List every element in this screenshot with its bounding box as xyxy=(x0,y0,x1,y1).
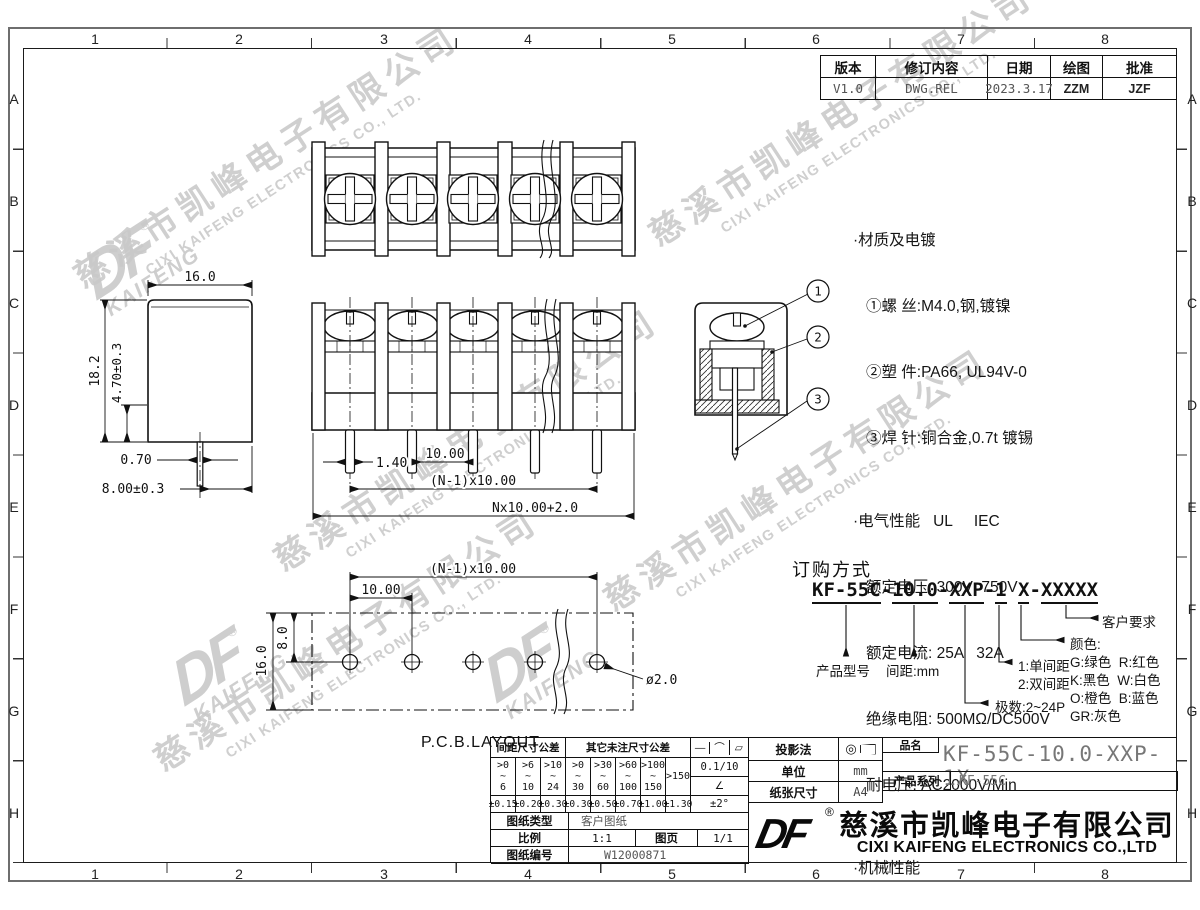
code-segment: 10.0 xyxy=(892,579,938,604)
ordering-color-option: GR:灰色 xyxy=(1070,705,1121,725)
dim-pin-offset: 8.00±0.3 xyxy=(102,482,165,497)
grid-row-label: A xyxy=(1182,91,1200,107)
scale-value: 1:1 xyxy=(569,830,636,847)
grid-col-label: 5 xyxy=(662,31,682,47)
df-logo: DF xyxy=(753,813,810,855)
revision-approved-by: JZF xyxy=(1103,78,1176,99)
tolerance-range: >100 ~ 150 xyxy=(641,758,666,796)
flatness-tolerance: 0.1/10 xyxy=(691,758,749,777)
grid-row-label: E xyxy=(1182,499,1200,515)
side-view: 16.0 18.2 4.70±0.3 0.70 8.00±0.3 xyxy=(85,268,300,503)
pitch-tolerance-header: 间距尺寸公差 xyxy=(491,738,566,758)
revision-content: DWG.REL xyxy=(876,78,988,99)
code-separator: - xyxy=(938,579,949,601)
code-separator: - xyxy=(881,579,892,601)
front-view: 1.40 10.00 (N-1)x10.00 Nx10.00+2.0 xyxy=(295,293,670,538)
grid-row-label: C xyxy=(4,295,24,311)
cone-icon xyxy=(860,744,876,755)
ordering-label-custom: 客户要求 xyxy=(1102,611,1156,631)
dimension-lines xyxy=(266,572,643,710)
dim-hole-diameter: ø2.0 xyxy=(646,673,677,688)
angle-icon: ∠ xyxy=(691,777,749,796)
sheet-label: 图页 xyxy=(636,830,698,847)
company-name-en: CIXI KAIFENG ELECTRONICS CO.,LTD xyxy=(837,839,1177,857)
tolerance-range: >6 ~ 10 xyxy=(516,758,541,796)
code-segment: XXXXX xyxy=(1041,579,1098,604)
callout-2: 2 xyxy=(814,330,822,345)
revision-value-row: V1.0 DWG.REL 2023.3.17 ZZM JZF xyxy=(821,78,1176,99)
grid-col-label: 2 xyxy=(229,31,249,47)
grid-row-label: C xyxy=(1182,295,1200,311)
dim-pitch: 10.00 xyxy=(425,447,464,462)
grid-col-label: 6 xyxy=(806,31,826,47)
title-block: 间距尺寸公差 其它未注尺寸公差 >0 ~ 6 >6 ~ 10 >10 ~ 24 … xyxy=(490,737,1177,863)
callout-1: 1 xyxy=(814,284,822,299)
material-line: ③焊 针:铜合金,0.7t 镀锡 xyxy=(853,428,1175,450)
grid-row-label: B xyxy=(4,193,24,209)
tolerance-range: >150 xyxy=(666,758,691,796)
dim-pin-width: 1.40 xyxy=(376,456,407,471)
callout-3: 3 xyxy=(814,392,822,407)
revision-header-row: 版本 修订内容 日期 绘图 批准 xyxy=(821,56,1176,78)
grid-row-label: F xyxy=(4,601,24,617)
revision-drawn-by: ZZM xyxy=(1051,78,1103,99)
company-block: DF ® 慈溪市凯峰电子有限公司 CIXI KAIFENG ELECTRONIC… xyxy=(749,803,1178,864)
grid-col-label: 8 xyxy=(1095,31,1115,47)
grid-ticks-left xyxy=(13,48,23,863)
geometry-symbols: — ⌒ ▱ xyxy=(691,738,749,758)
code-separator xyxy=(1007,579,1018,601)
material-line: ①螺 丝:M4.0,钢,镀镍 xyxy=(853,296,1175,318)
unit-label: 单位 xyxy=(749,761,839,782)
doc-number-label: 图纸编号 xyxy=(491,847,569,864)
dim-width: 16.0 xyxy=(184,270,215,285)
parallelogram-icon: ▱ xyxy=(730,742,748,754)
code-separator: - xyxy=(984,579,995,601)
tolerance-value: ±0.20 xyxy=(516,796,541,813)
screw-heads-front xyxy=(324,311,623,352)
grid-ticks-right xyxy=(1177,48,1187,863)
other-tolerance-header: 其它未注尺寸公差 xyxy=(566,738,691,758)
scale-label: 比例 xyxy=(491,830,569,847)
grid-col-label: 1 xyxy=(85,866,105,882)
ordering-label-double-pitch: 2:双间距 xyxy=(1018,673,1070,693)
dim-span: (N-1)x10.00 xyxy=(430,474,516,489)
paper-size-value: A4 xyxy=(839,782,883,803)
sheet-value: 1/1 xyxy=(698,830,749,847)
doc-type-label: 图纸类型 xyxy=(491,813,569,830)
dim-height: 18.2 xyxy=(88,355,103,386)
code-segment: XXP xyxy=(949,579,983,604)
grid-col-label: 2 xyxy=(229,866,249,882)
dim-pitch: 10.00 xyxy=(361,583,400,598)
ordering-color-option: G:绿色 R:红色 xyxy=(1070,651,1159,671)
revision-version: V1.0 xyxy=(821,78,876,99)
break-lines xyxy=(553,609,569,714)
top-view xyxy=(300,138,665,260)
ordering-label-color-title: 颜色: xyxy=(1070,633,1101,653)
revision-header: 批准 xyxy=(1103,56,1176,77)
grid-col-label: 7 xyxy=(951,31,971,47)
engineering-drawing-sheet: 慈溪市凯峰电子有限公司 CIXI KAIFENG ELECTRONICS CO.… xyxy=(0,0,1200,910)
dim-pin-thickness: 0.70 xyxy=(120,453,151,468)
dim-depth: 16.0 xyxy=(255,645,270,676)
screw-heads-top xyxy=(325,174,623,225)
grid-col-label: 4 xyxy=(518,31,538,47)
electrical-title: ·电气性能 UL IEC xyxy=(853,511,1175,533)
revision-header: 绘图 xyxy=(1051,56,1103,77)
ordering-label-model: 产品型号 xyxy=(816,660,870,680)
dim-pin-length: 4.70±0.3 xyxy=(109,343,124,403)
mounting-holes xyxy=(339,651,608,673)
revision-header: 日期 xyxy=(988,56,1051,77)
revision-header: 版本 xyxy=(821,56,876,77)
code-separator: - xyxy=(1029,579,1040,601)
dim-total: Nx10.00+2.0 xyxy=(492,501,578,516)
registered-mark: ® xyxy=(825,805,834,819)
grid-row-label: H xyxy=(4,805,24,821)
tolerance-range: >10 ~ 24 xyxy=(541,758,566,796)
grid-row-label: A xyxy=(4,91,24,107)
tolerance-value: ±0.15 xyxy=(491,796,516,813)
doc-number-value: W12000871 xyxy=(569,847,749,864)
ordering-label-pitch: 间距:mm xyxy=(886,660,939,680)
tolerance-range: >0 ~ 6 xyxy=(491,758,516,796)
straightness-icon: — xyxy=(691,742,710,754)
tolerance-value: ±0.50 xyxy=(591,796,616,813)
ordering-label-single-pitch: 1:单间距 xyxy=(1018,655,1070,675)
company-name-cn: 慈溪市凯峰电子有限公司 xyxy=(837,803,1177,844)
doc-type-value: 客户图纸 xyxy=(569,813,749,830)
tolerance-value: ±1.00 xyxy=(641,796,666,813)
tolerance-range: >60 ~ 100 xyxy=(616,758,641,796)
code-segment: KF-55C xyxy=(812,579,881,604)
grid-row-label: B xyxy=(1182,193,1200,209)
dim-span: (N-1)x10.00 xyxy=(430,562,516,577)
projection-symbol-cell: ◎ xyxy=(839,738,883,761)
unit-value: mm xyxy=(839,761,883,782)
revision-header: 修订内容 xyxy=(876,56,988,77)
grid-col-label: 1 xyxy=(85,31,105,47)
series-label: 产品系列 xyxy=(883,771,951,791)
grid-col-label: 3 xyxy=(374,31,394,47)
grid-col-label: 3 xyxy=(374,866,394,882)
grid-ticks-top xyxy=(23,38,1177,48)
code-segment: 1 xyxy=(995,579,1006,604)
grid-col-label: 6 xyxy=(806,866,826,882)
grid-row-label: E xyxy=(4,499,24,515)
first-angle-icon: ◎ xyxy=(845,741,856,757)
material-title: ·材质及电镀 xyxy=(853,230,1175,252)
tolerance-value: ±1.30 xyxy=(666,796,691,813)
grid-row-label: D xyxy=(1182,397,1200,413)
section-view: 1 2 3 xyxy=(665,268,870,473)
revision-table: 版本 修订内容 日期 绘图 批准 V1.0 DWG.REL 2023.3.17 … xyxy=(820,55,1177,100)
series-value: KF-55C xyxy=(951,771,1178,791)
tolerance-range: >30 ~ 60 xyxy=(591,758,616,796)
grid-row-label: D xyxy=(4,397,24,413)
material-line: ②塑 件:PA66, UL94V-0 xyxy=(853,362,1175,384)
grid-row-label: G xyxy=(4,703,24,719)
dim-row-offset: 8.0 xyxy=(276,626,291,649)
tolerance-value: ±0.70 xyxy=(616,796,641,813)
ordering-color-option: K:黑色 W:白色 xyxy=(1070,669,1161,689)
revision-date: 2023.3.17 xyxy=(988,78,1051,99)
projection-label: 投影法 xyxy=(749,738,839,761)
grid-col-label: 4 xyxy=(518,866,538,882)
tolerance-range: >0 ~ 30 xyxy=(566,758,591,796)
grid-col-label: 5 xyxy=(662,866,682,882)
tolerance-value: ±0.30 xyxy=(541,796,566,813)
arc-icon: ⌒ xyxy=(710,740,729,755)
tolerance-value: ±0.30 xyxy=(566,796,591,813)
paper-size-label: 纸张尺寸 xyxy=(749,782,839,803)
callout-bubbles xyxy=(807,280,829,410)
part-name-label: 品名 xyxy=(883,738,939,753)
pcb-layout-view: (N-1)x10.00 10.00 8.0 16.0 ø2.0 P.C.B.LA… xyxy=(258,560,683,760)
ordering-label-poles: 极数:2~24P xyxy=(995,696,1065,716)
ordering-code: KF-55C-10.0-XXP-1 X-XXXXX xyxy=(812,579,1098,601)
grid-row-label: H xyxy=(1182,805,1200,821)
ordering-color-option: O:橙色 B:蓝色 xyxy=(1070,687,1159,707)
code-segment: X xyxy=(1018,579,1029,604)
angle-tolerance: ±2° xyxy=(691,796,749,813)
